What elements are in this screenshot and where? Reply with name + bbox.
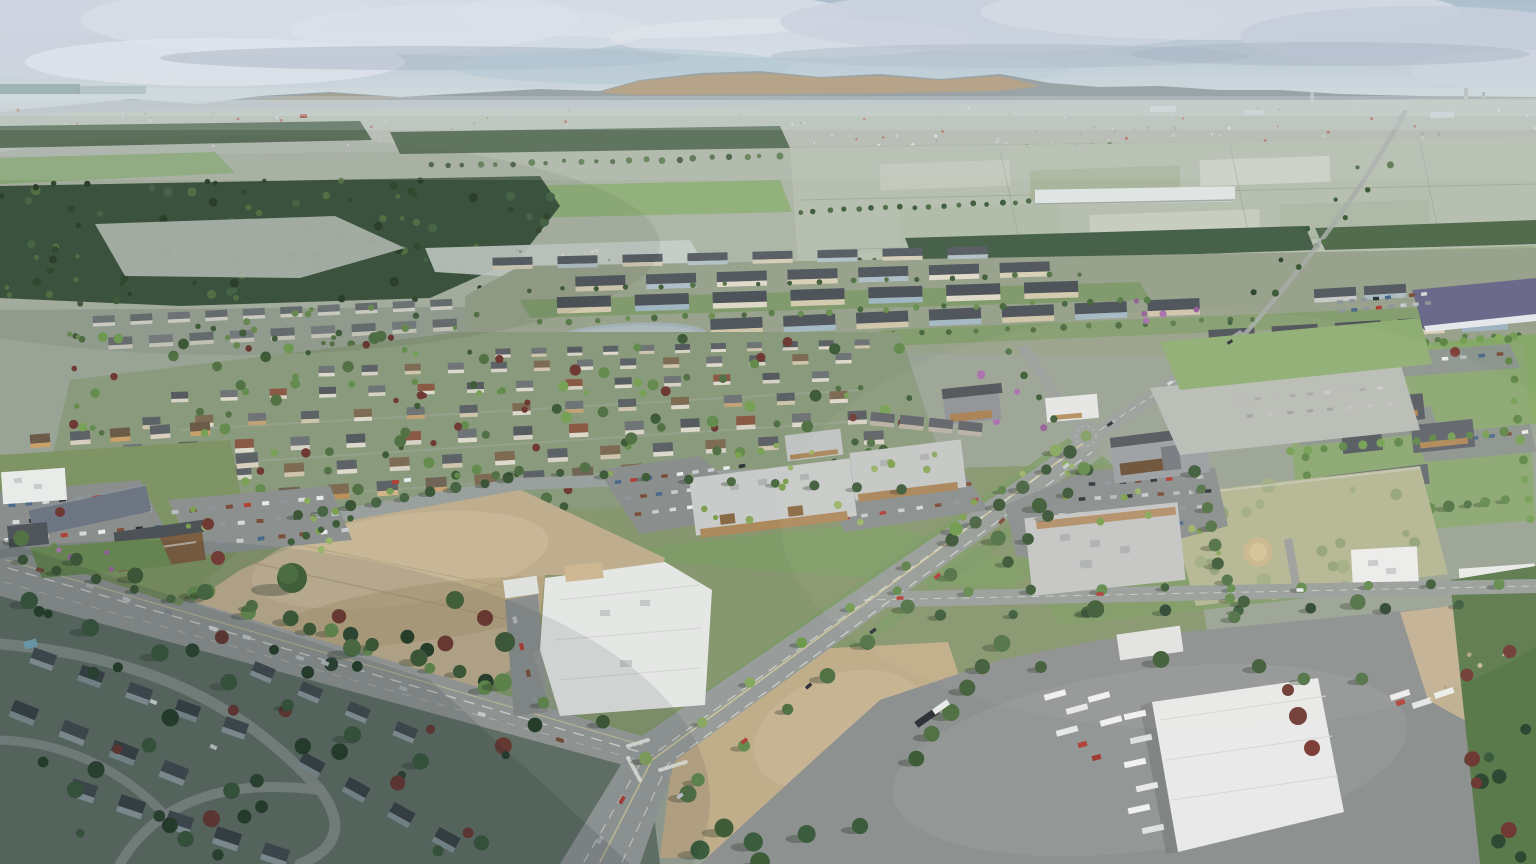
scene-layers <box>0 0 1536 864</box>
aerial-render-canvas <box>0 0 1536 864</box>
screenshot-stage <box>0 0 1536 864</box>
aerial-city-render <box>0 0 1536 864</box>
